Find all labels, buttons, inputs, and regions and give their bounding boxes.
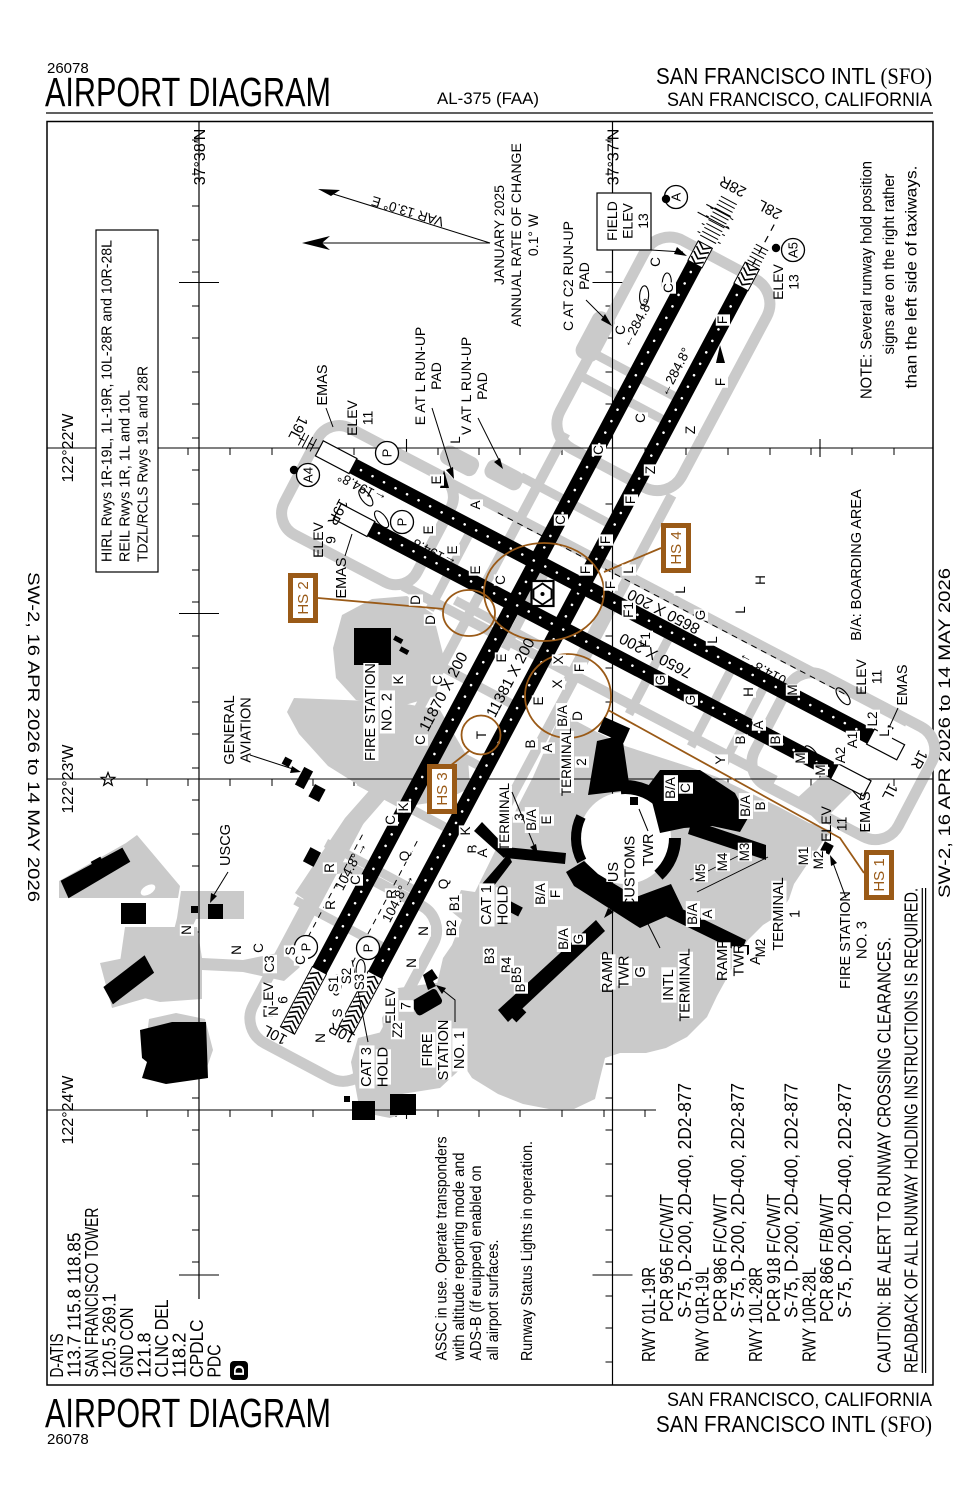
svg-text:B/A: B/A: [524, 809, 539, 831]
svg-text:F: F: [715, 316, 730, 324]
svg-text:US: US: [606, 862, 622, 882]
svg-text:FIRE STATION: FIRE STATION: [838, 891, 854, 989]
svg-text:TERMINAL: TERMINAL: [497, 782, 512, 851]
svg-text:FIELD: FIELD: [604, 201, 620, 241]
svg-text:A: A: [700, 909, 715, 918]
svg-text:Q: Q: [436, 879, 451, 890]
svg-text:L: L: [705, 636, 720, 644]
svg-text:H: H: [753, 575, 768, 585]
svg-text:FIRE STATION: FIRE STATION: [363, 663, 379, 761]
svg-text:S: S: [283, 946, 298, 955]
svg-text:AVIATION: AVIATION: [239, 697, 255, 763]
svg-text:B: B: [768, 735, 783, 744]
svg-text:K: K: [396, 802, 411, 811]
svg-text:GENERAL: GENERAL: [222, 695, 238, 764]
svg-text:F: F: [623, 496, 638, 504]
svg-text:EMAS: EMAS: [895, 664, 911, 705]
svg-text:TWR: TWR: [641, 833, 657, 866]
svg-text:SAN FRANCISCO INTL (SFO): SAN FRANCISCO INTL (SFO): [656, 63, 932, 89]
svg-text:B/A: B/A: [556, 928, 571, 950]
svg-text:CUSTOMS: CUSTOMS: [623, 836, 639, 908]
svg-text:NO. 2: NO. 2: [380, 693, 396, 731]
svg-text:PAD: PAD: [428, 362, 444, 390]
svg-text:ELEV: ELEV: [818, 805, 834, 841]
svg-text:K: K: [391, 675, 406, 684]
svg-text:C: C: [553, 515, 568, 525]
svg-text:B: B: [513, 983, 528, 992]
svg-text:D: D: [231, 1365, 248, 1376]
svg-text:37°38′N: 37°38′N: [192, 129, 209, 186]
svg-text:TDZL/RCLS Rwys 19L and 28R: TDZL/RCLS Rwys 19L and 28R: [134, 366, 151, 562]
svg-text:T: T: [474, 731, 489, 739]
svg-text:NO. 3: NO. 3: [855, 921, 871, 959]
svg-text:N: N: [404, 958, 419, 968]
svg-text:NO. 1: NO. 1: [452, 1031, 468, 1069]
svg-text:F: F: [713, 378, 728, 386]
svg-text:X: X: [551, 655, 566, 664]
svg-text:L: L: [877, 729, 892, 737]
svg-text:REIL Rwys 1R, 1L and 10L: REIL Rwys 1R, 1L and 10L: [116, 390, 133, 562]
svg-text:S3: S3: [352, 974, 367, 991]
svg-text:ELEV: ELEV: [344, 399, 360, 435]
svg-text:P: P: [395, 518, 410, 527]
svg-text:AIRPORT DIAGRAM: AIRPORT DIAGRAM: [45, 69, 331, 115]
svg-text:all airport surfaces.: all airport surfaces.: [485, 1240, 502, 1361]
svg-text:B3: B3: [482, 948, 497, 965]
svg-text:D: D: [408, 595, 423, 605]
svg-text:B/A: B/A: [555, 705, 570, 727]
svg-text:K: K: [458, 826, 473, 835]
svg-text:C: C: [661, 283, 676, 293]
svg-text:CAUTION: BE ALERT TO RUNWAY CR: CAUTION: BE ALERT TO RUNWAY CROSSING CLE…: [875, 937, 895, 1373]
svg-text:B: B: [523, 739, 538, 748]
svg-text:Runway Status Lights in operat: Runway Status Lights in operation.: [519, 1141, 536, 1361]
svg-text:B/A: B/A: [685, 903, 700, 925]
svg-text:26078: 26078: [47, 1431, 89, 1448]
svg-text:G: G: [683, 695, 698, 706]
svg-text:G: G: [633, 966, 649, 977]
svg-text:AIRPORT DIAGRAM: AIRPORT DIAGRAM: [45, 1390, 331, 1436]
svg-text:9: 9: [323, 536, 339, 544]
svg-text:B1: B1: [447, 895, 462, 912]
svg-text:13: 13: [786, 274, 802, 290]
svg-text:EMAS: EMAS: [858, 791, 874, 832]
svg-text:JANUARY 2025: JANUARY 2025: [491, 185, 507, 285]
svg-text:B5: B5: [509, 967, 524, 984]
svg-text:ELEV: ELEV: [770, 263, 786, 299]
svg-text:R: R: [322, 863, 337, 873]
svg-text:ELEV: ELEV: [853, 658, 869, 694]
svg-text:E: E: [468, 565, 483, 574]
svg-text:C: C: [648, 257, 663, 267]
svg-text:TWR: TWR: [617, 955, 633, 988]
svg-text:AL-375 (FAA): AL-375 (FAA): [437, 90, 539, 108]
svg-text:F: F: [572, 664, 587, 672]
svg-text:CAT 1: CAT 1: [479, 885, 495, 925]
svg-text:C: C: [591, 445, 606, 455]
svg-text:TERMINAL: TERMINAL: [771, 877, 787, 950]
svg-text:PAD: PAD: [576, 262, 592, 290]
svg-text:G: G: [571, 934, 586, 945]
svg-text:11: 11: [834, 817, 850, 832]
svg-text:USCG: USCG: [218, 824, 234, 866]
svg-text:ELEV: ELEV: [620, 202, 636, 238]
svg-text:M3: M3: [737, 843, 752, 862]
svg-text:C: C: [413, 735, 428, 745]
svg-text:E: E: [429, 475, 444, 484]
svg-text:C: C: [493, 575, 508, 585]
svg-text:A: A: [475, 848, 490, 857]
svg-text:P: P: [299, 943, 314, 952]
svg-text:D: D: [423, 615, 438, 625]
svg-text:M1: M1: [796, 847, 811, 866]
svg-text:M2: M2: [753, 939, 768, 958]
svg-text:E: E: [539, 815, 554, 824]
svg-text:B/A: B/A: [663, 777, 678, 799]
svg-text:Z2: Z2: [390, 1022, 405, 1038]
svg-text:P: P: [380, 449, 395, 458]
svg-text:F: F: [578, 566, 593, 574]
svg-text:6: 6: [275, 996, 291, 1004]
svg-text:F: F: [598, 536, 613, 544]
svg-text:D: D: [570, 711, 585, 721]
svg-text:F: F: [603, 581, 618, 589]
svg-text:1: 1: [788, 910, 804, 918]
svg-text:EMAS: EMAS: [334, 557, 350, 598]
svg-text:SW-2, 16 APR 2026 to 14 MAY: SW-2, 16 APR 2026 to 14 MAY 2026: [936, 568, 954, 898]
svg-text:TERMINAL: TERMINAL: [559, 727, 574, 796]
svg-text:ELEV: ELEV: [382, 987, 398, 1023]
svg-text:L: L: [673, 586, 688, 594]
svg-text:L: L: [448, 436, 463, 444]
svg-text:E: E: [531, 696, 546, 705]
svg-text:F: F: [548, 890, 563, 898]
svg-text:11: 11: [360, 411, 376, 426]
svg-text:SAN FRANCISCO INTL (SFO): SAN FRANCISCO INTL (SFO): [656, 1411, 932, 1437]
svg-text:HOLD: HOLD: [376, 1047, 392, 1087]
svg-text:M2: M2: [811, 851, 826, 870]
svg-text:N: N: [266, 1006, 281, 1016]
svg-text:E: E: [494, 653, 509, 662]
svg-text:37°37′N: 37°37′N: [605, 129, 622, 186]
svg-text:ASSC in use. Operate transpond: ASSC in use. Operate transponders: [434, 1136, 451, 1360]
svg-text:S: S: [330, 1008, 345, 1017]
svg-text:11: 11: [869, 670, 885, 685]
svg-text:FIRE: FIRE: [420, 1033, 436, 1066]
svg-text:RAMP: RAMP: [600, 951, 616, 993]
svg-text:ADS-B (if euipped) enabled on: ADS-B (if euipped) enabled on: [468, 1166, 485, 1361]
svg-text:H: H: [741, 687, 756, 697]
svg-text:EMAS: EMAS: [315, 364, 331, 405]
svg-text:R: R: [323, 900, 338, 910]
svg-text:M5: M5: [693, 864, 708, 883]
svg-text:B2: B2: [444, 920, 459, 937]
svg-text:TWR: TWR: [732, 943, 748, 976]
svg-text:HIRL Rwys 1R-19L, 1L-19R, 10L-: HIRL Rwys 1R-19L, 1L-19R, 10L-28R and 10…: [98, 240, 115, 562]
svg-text:N: N: [229, 945, 244, 955]
svg-text:2: 2: [574, 758, 589, 766]
svg-text:N: N: [313, 1033, 328, 1043]
svg-text:Z: Z: [643, 466, 658, 474]
svg-text:L: L: [733, 606, 748, 614]
svg-text:signs are on the right rather: signs are on the right rather: [881, 174, 898, 355]
svg-text:B: B: [753, 801, 768, 810]
svg-text:HS 1: HS 1: [871, 858, 888, 891]
svg-text:13: 13: [635, 213, 651, 229]
svg-text:V AT L RUN-UP: V AT L RUN-UP: [458, 337, 474, 436]
svg-text:C: C: [251, 943, 266, 953]
svg-text:ANNUAL RATE OF CHANGE: ANNUAL RATE OF CHANGE: [508, 143, 524, 327]
svg-text:INTL: INTL: [661, 969, 677, 1000]
svg-text:A: A: [669, 192, 684, 201]
svg-text:E AT L RUN-UP: E AT L RUN-UP: [412, 327, 428, 426]
svg-text:C3: C3: [262, 955, 277, 972]
svg-text:A: A: [540, 743, 555, 752]
svg-text:A: A: [468, 500, 483, 509]
svg-text:E: E: [421, 525, 436, 534]
svg-text:CAT 3: CAT 3: [359, 1047, 375, 1087]
svg-text:A4: A4: [301, 467, 316, 483]
svg-text:Z: Z: [683, 426, 698, 434]
svg-text:M: M: [813, 764, 828, 775]
svg-text:C: C: [678, 783, 693, 793]
svg-text:A1: A1: [845, 732, 860, 749]
svg-text:HS 4: HS 4: [668, 531, 685, 564]
svg-text:C: C: [633, 413, 648, 423]
svg-text:HOLD: HOLD: [496, 885, 512, 925]
svg-text:0.1° W: 0.1° W: [525, 213, 541, 256]
svg-text:X: X: [550, 679, 565, 688]
svg-text:B: B: [733, 735, 748, 744]
svg-text:G: G: [653, 675, 668, 686]
svg-text:M: M: [785, 684, 800, 695]
svg-text:C: C: [383, 815, 398, 825]
svg-text:A5: A5: [786, 242, 801, 258]
svg-text:HS 3: HS 3: [434, 772, 451, 805]
svg-text:M4: M4: [715, 852, 730, 871]
svg-text:S-75, D-200, 2D-400, 2D2-877: S-75, D-200, 2D-400, 2D2-877: [835, 1083, 855, 1318]
svg-text:SW-2, 16 APR 2026 to 14 MAY: SW-2, 16 APR 2026 to 14 MAY 2026: [24, 572, 42, 902]
svg-text:P: P: [361, 944, 376, 953]
svg-text:SAN FRANCISCO, CALIFORNIA: SAN FRANCISCO, CALIFORNIA: [667, 1389, 932, 1411]
svg-text:L2: L2: [865, 711, 880, 726]
svg-text:M: M: [793, 752, 808, 763]
svg-text:READBACK OF ALL RUNWAY HOLDING: READBACK OF ALL RUNWAY HOLDING INSTRUCTI…: [902, 888, 922, 1373]
svg-text:7: 7: [398, 1002, 414, 1010]
svg-text:B/A: B/A: [533, 883, 548, 905]
svg-text:HS 2: HS 2: [295, 581, 312, 614]
svg-text:C AT C2 RUN-UP: C AT C2 RUN-UP: [560, 221, 576, 331]
svg-text:Y: Y: [713, 755, 728, 764]
svg-text:PDC: PDC: [204, 1345, 224, 1378]
svg-text:NOTE: Several runway hold posi: NOTE: Several runway hold position: [859, 161, 876, 399]
svg-text:Q: Q: [397, 851, 412, 862]
svg-text:TERMINAL: TERMINAL: [678, 948, 694, 1021]
svg-text:N: N: [179, 925, 194, 935]
svg-text:S1: S1: [326, 976, 341, 993]
svg-text:B/A: B/A: [738, 795, 753, 817]
svg-text:SAN FRANCISCO, CALIFORNIA: SAN FRANCISCO, CALIFORNIA: [667, 89, 932, 111]
svg-text:than the left side of taxiways: than the left side of taxiways.: [904, 166, 921, 389]
svg-text:RAMP: RAMP: [715, 939, 731, 981]
svg-text:L: L: [621, 566, 636, 574]
svg-text:N: N: [416, 926, 431, 936]
svg-text:STATION: STATION: [436, 1020, 452, 1081]
svg-text:B/A: BOARDING AREA: B/A: BOARDING AREA: [849, 489, 865, 641]
svg-text:PAD: PAD: [474, 372, 490, 400]
svg-text:with altitude reporting mode a: with altitude reporting mode and: [451, 1153, 468, 1362]
